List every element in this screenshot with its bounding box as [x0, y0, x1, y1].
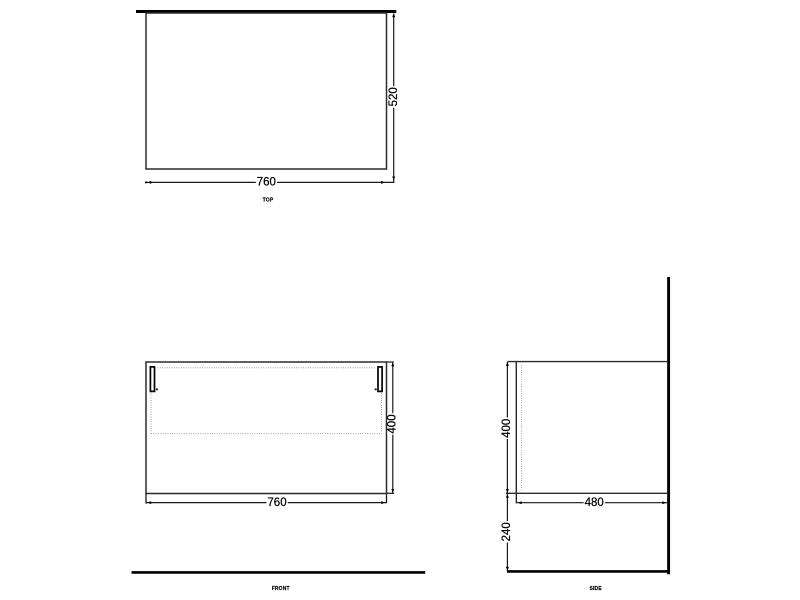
svg-text:760: 760 [267, 497, 286, 509]
svg-text:400: 400 [501, 419, 513, 438]
svg-text:760: 760 [257, 177, 276, 189]
svg-text:480: 480 [585, 497, 604, 509]
svg-text:TOP: TOP [263, 197, 274, 203]
svg-text:SIDE: SIDE [589, 586, 602, 592]
svg-text:520: 520 [388, 87, 400, 106]
svg-text:240: 240 [501, 522, 513, 541]
svg-text:FRONT: FRONT [272, 586, 290, 592]
svg-text:400: 400 [386, 414, 398, 433]
